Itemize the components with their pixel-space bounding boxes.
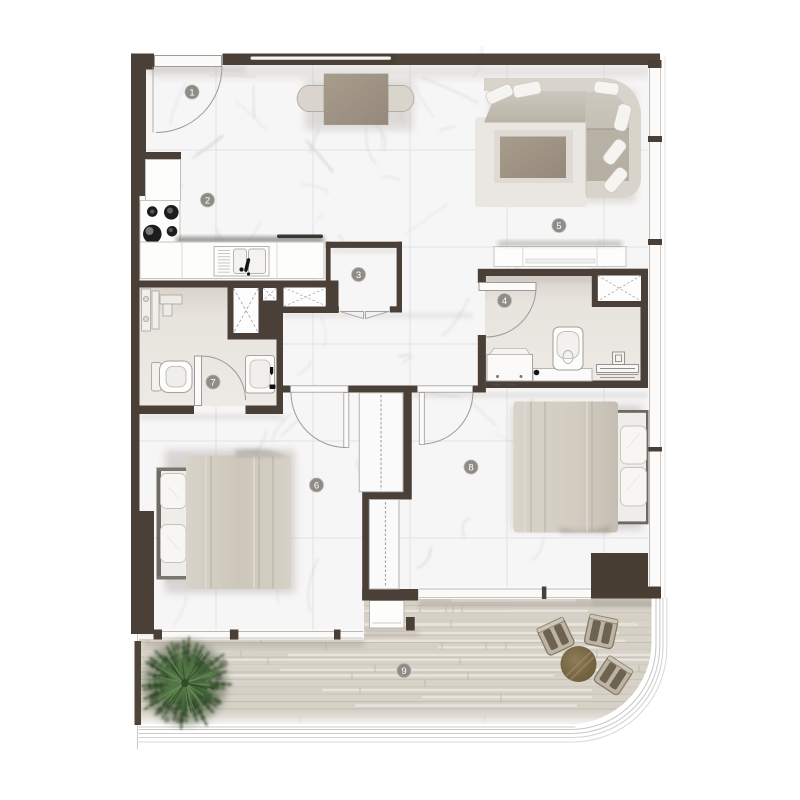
svg-text:6: 6 bbox=[314, 480, 319, 491]
svg-text:3: 3 bbox=[356, 270, 361, 281]
svg-text:8: 8 bbox=[468, 462, 473, 473]
svg-text:5: 5 bbox=[556, 221, 561, 232]
svg-text:4: 4 bbox=[502, 296, 507, 307]
svg-text:9: 9 bbox=[401, 666, 406, 677]
svg-text:2: 2 bbox=[205, 195, 210, 206]
svg-text:7: 7 bbox=[210, 377, 215, 388]
svg-text:1: 1 bbox=[189, 87, 194, 98]
